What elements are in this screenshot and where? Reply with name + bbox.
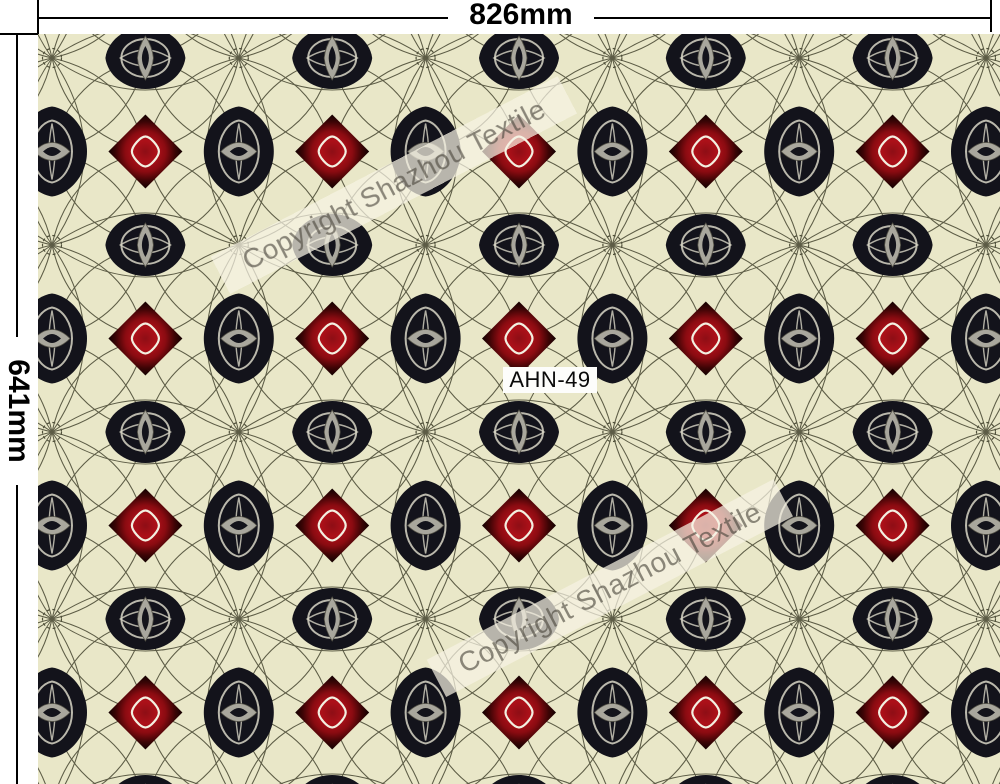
left-dimension-tick-top [0,33,38,35]
product-code-label: AHN-49 [503,367,597,393]
fabric-swatch [38,34,1000,784]
top-dimension-tick-left [37,0,39,34]
textile-swatch-page: { "dimensions": { "width_label": "826mm"… [0,0,1000,784]
fabric-pattern-svg [38,34,1000,784]
height-dimension-label: 641mm [0,337,34,485]
width-dimension-label: 826mm [448,0,594,32]
top-dimension-tick-right [990,0,992,32]
